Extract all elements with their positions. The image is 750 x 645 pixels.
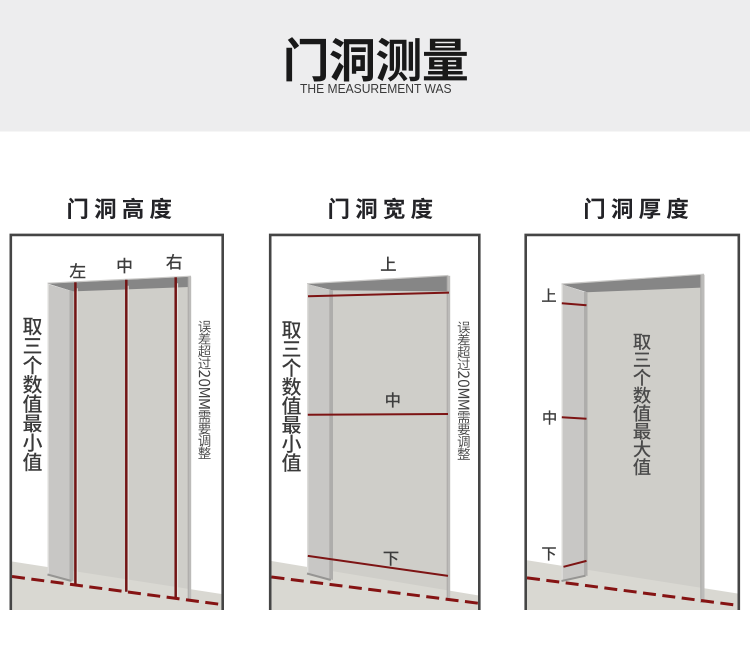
svg-text:THE MEASUREMENT WAS: THE MEASUREMENT WAS	[300, 82, 452, 96]
